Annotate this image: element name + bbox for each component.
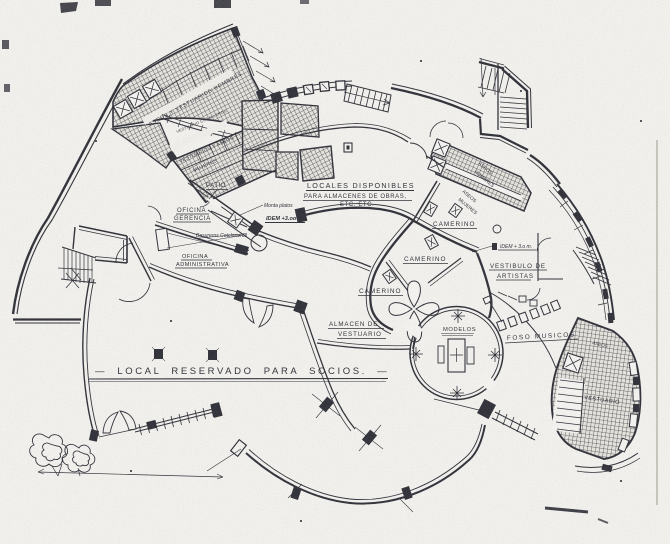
svg-text:ALMACEN DE: ALMACEN DE bbox=[329, 321, 378, 328]
svg-text:OFICINA: OFICINA bbox=[177, 208, 206, 214]
svg-text:Monta platos: Monta platos bbox=[264, 203, 293, 209]
svg-text:MODELOS: MODELOS bbox=[443, 327, 476, 333]
svg-text:VESTUARIO: VESTUARIO bbox=[338, 331, 382, 338]
svg-text:OFICINA: OFICINA bbox=[182, 254, 208, 260]
svg-text:CAMERINO: CAMERINO bbox=[359, 288, 401, 295]
svg-text:CAMERINO: CAMERINO bbox=[404, 256, 446, 263]
svg-text:GERENCIA: GERENCIA bbox=[174, 216, 211, 222]
svg-text:ETC. ETC.: ETC. ETC. bbox=[340, 202, 374, 208]
svg-text:IDEM +3.oo m.: IDEM +3.oo m. bbox=[266, 216, 305, 222]
svg-text:ARTISTAS: ARTISTAS bbox=[497, 273, 534, 280]
svg-text:LOCALES DISPONIBLES: LOCALES DISPONIBLES bbox=[307, 181, 415, 190]
svg-text:IDEM + 3.o m.: IDEM + 3.o m. bbox=[500, 244, 532, 250]
svg-text:PATIO: PATIO bbox=[206, 183, 226, 189]
svg-text:— LOCAL RESERVADO PARA SOCIOS.: — LOCAL RESERVADO PARA SOCIOS. — bbox=[95, 366, 389, 377]
svg-text:ADMINISTRATIVA: ADMINISTRATIVA bbox=[176, 262, 229, 268]
svg-text:CAMERINO: CAMERINO bbox=[433, 221, 475, 228]
svg-text:PARA ALMACENES DE OBRAS,: PARA ALMACENES DE OBRAS, bbox=[304, 194, 407, 200]
